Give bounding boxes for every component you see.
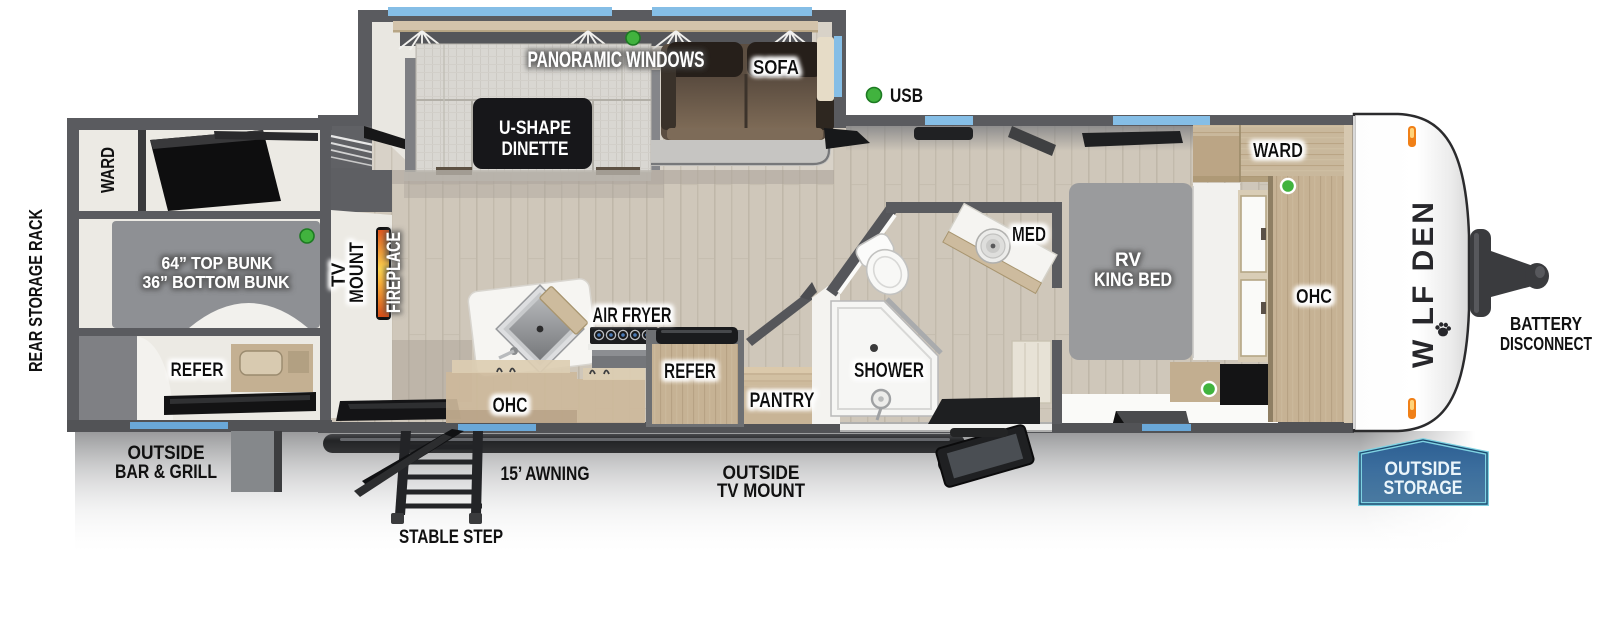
svg-text:KING BED: KING BED	[1094, 270, 1172, 291]
svg-text:TV MOUNT: TV MOUNT	[717, 480, 805, 502]
svg-text:AIR FRYER: AIR FRYER	[593, 304, 672, 327]
svg-text:SHOWER: SHOWER	[854, 359, 924, 382]
svg-text:STORAGE: STORAGE	[1384, 478, 1463, 499]
svg-text:USB: USB	[890, 86, 923, 107]
svg-text:BAR & GRILL: BAR & GRILL	[115, 462, 217, 483]
svg-text:U-SHAPE: U-SHAPE	[499, 118, 571, 139]
svg-text:MOUNT: MOUNT	[347, 242, 368, 303]
svg-text:FIREPLACE: FIREPLACE	[384, 232, 405, 313]
svg-text:BATTERY: BATTERY	[1510, 314, 1582, 334]
svg-text:WARD: WARD	[1253, 140, 1303, 162]
svg-text:OHC: OHC	[493, 394, 528, 417]
svg-text:OUTSIDE: OUTSIDE	[1385, 459, 1462, 480]
svg-text:PANTRY: PANTRY	[750, 389, 815, 412]
svg-text:DINETTE: DINETTE	[502, 139, 569, 160]
svg-text:REFER: REFER	[664, 360, 716, 383]
svg-text:REFER: REFER	[171, 360, 224, 381]
svg-text:W LF DEN: W LF DEN	[1407, 199, 1440, 368]
svg-text:64” TOP BUNK: 64” TOP BUNK	[162, 253, 273, 273]
svg-text:OHC: OHC	[1296, 286, 1332, 308]
svg-text:OUTSIDE: OUTSIDE	[128, 443, 205, 464]
svg-text:WARD: WARD	[97, 147, 118, 193]
svg-text:RV: RV	[1115, 250, 1141, 271]
svg-text:DISCONNECT: DISCONNECT	[1500, 334, 1592, 354]
svg-text:STABLE STEP: STABLE STEP	[399, 526, 503, 548]
svg-text:36” BOTTOM BUNK: 36” BOTTOM BUNK	[143, 272, 290, 292]
svg-text:REAR STORAGE RACK: REAR STORAGE RACK	[26, 209, 46, 372]
svg-text:15’ AWNING: 15’ AWNING	[501, 463, 590, 485]
svg-text:SOFA: SOFA	[753, 57, 799, 79]
svg-text:PANORAMIC WINDOWS: PANORAMIC WINDOWS	[528, 47, 705, 72]
svg-text:MED: MED	[1012, 224, 1046, 246]
